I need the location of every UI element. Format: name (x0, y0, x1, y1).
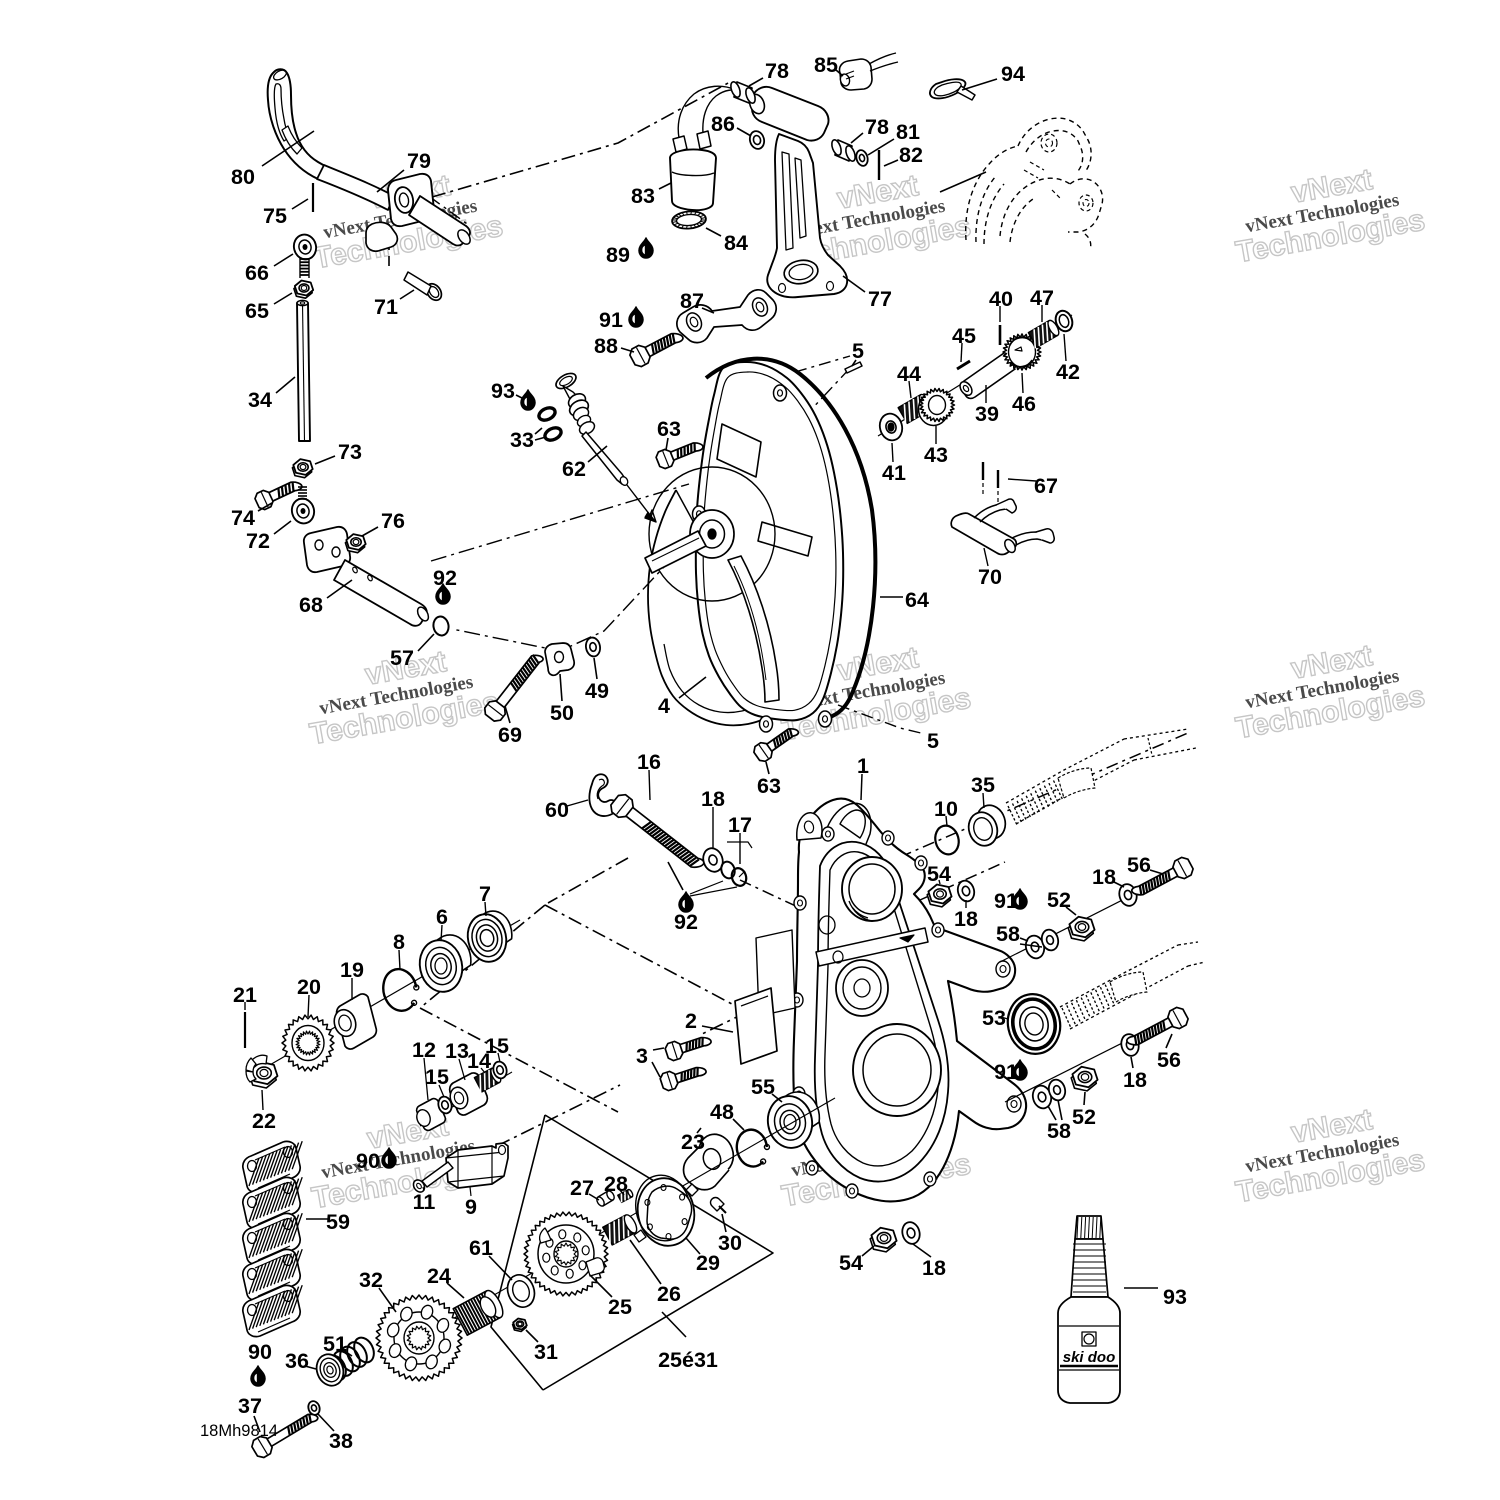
svg-text:93: 93 (491, 379, 515, 403)
svg-text:91: 91 (994, 1060, 1018, 1084)
svg-text:57: 57 (390, 646, 414, 670)
svg-text:13: 13 (445, 1039, 469, 1063)
svg-text:3: 3 (636, 1044, 648, 1068)
svg-text:86: 86 (711, 112, 735, 136)
svg-text:71: 71 (374, 295, 398, 319)
svg-text:9: 9 (465, 1195, 477, 1219)
svg-text:26: 26 (657, 1282, 681, 1306)
svg-text:18: 18 (922, 1256, 946, 1280)
svg-text:92: 92 (433, 566, 457, 590)
svg-text:64: 64 (905, 588, 929, 612)
svg-text:31: 31 (534, 1340, 558, 1364)
svg-text:59: 59 (326, 1210, 350, 1234)
svg-text:ski doo: ski doo (1063, 1349, 1116, 1366)
svg-text:34: 34 (248, 388, 272, 412)
svg-text:58: 58 (1047, 1119, 1071, 1143)
svg-text:33: 33 (510, 428, 534, 452)
svg-text:82: 82 (899, 143, 923, 167)
svg-text:5: 5 (927, 729, 939, 753)
svg-text:45: 45 (952, 324, 976, 348)
svg-text:28: 28 (604, 1172, 628, 1196)
svg-text:56: 56 (1127, 853, 1151, 877)
svg-text:25é31: 25é31 (658, 1348, 718, 1372)
svg-text:63: 63 (757, 774, 781, 798)
svg-text:90: 90 (248, 1340, 272, 1364)
svg-text:76: 76 (381, 509, 405, 533)
svg-text:62: 62 (562, 457, 586, 481)
svg-text:43: 43 (924, 443, 948, 467)
svg-text:36: 36 (285, 1349, 309, 1373)
svg-text:68: 68 (299, 593, 323, 617)
svg-text:81: 81 (896, 120, 920, 144)
svg-text:66: 66 (245, 261, 269, 285)
svg-text:83: 83 (631, 184, 655, 208)
svg-text:1: 1 (857, 754, 869, 778)
svg-text:4: 4 (658, 694, 670, 718)
svg-text:23: 23 (681, 1130, 705, 1154)
svg-text:46: 46 (1012, 392, 1036, 416)
svg-text:41: 41 (882, 461, 906, 485)
svg-text:70: 70 (978, 565, 1002, 589)
svg-text:75: 75 (263, 204, 287, 228)
svg-text:77: 77 (868, 287, 892, 311)
svg-text:67: 67 (1034, 474, 1058, 498)
svg-text:78: 78 (765, 59, 789, 83)
svg-text:55: 55 (751, 1075, 775, 1099)
svg-text:48: 48 (710, 1100, 734, 1124)
svg-text:22: 22 (252, 1109, 276, 1133)
svg-text:91: 91 (599, 308, 623, 332)
svg-text:72: 72 (246, 529, 270, 553)
svg-text:63: 63 (657, 417, 681, 441)
svg-text:15: 15 (425, 1065, 449, 1089)
svg-text:42: 42 (1056, 360, 1080, 384)
svg-text:51: 51 (323, 1332, 347, 1356)
svg-text:60: 60 (545, 798, 569, 822)
svg-text:18: 18 (1123, 1068, 1147, 1092)
svg-text:15: 15 (485, 1034, 509, 1058)
svg-text:11: 11 (413, 1190, 436, 1214)
svg-text:27: 27 (570, 1176, 594, 1200)
svg-text:85: 85 (814, 53, 838, 77)
svg-text:74: 74 (231, 506, 255, 530)
svg-text:18Mh9814: 18Mh9814 (200, 1422, 278, 1440)
svg-text:90: 90 (356, 1149, 380, 1173)
svg-text:29: 29 (696, 1251, 720, 1275)
svg-text:54: 54 (839, 1251, 863, 1275)
svg-text:73: 73 (338, 440, 362, 464)
svg-text:38: 38 (329, 1429, 353, 1453)
svg-text:40: 40 (989, 287, 1013, 311)
svg-text:94: 94 (1001, 62, 1025, 86)
svg-text:49: 49 (585, 679, 609, 703)
svg-text:39: 39 (975, 402, 999, 426)
svg-text:84: 84 (724, 231, 748, 255)
svg-text:25: 25 (608, 1295, 632, 1319)
svg-text:93: 93 (1163, 1285, 1187, 1309)
svg-text:65: 65 (245, 299, 269, 323)
svg-text:89: 89 (606, 243, 630, 267)
svg-text:80: 80 (231, 165, 255, 189)
svg-text:52: 52 (1072, 1105, 1096, 1129)
svg-text:18: 18 (1092, 865, 1116, 889)
svg-text:69: 69 (498, 723, 522, 747)
svg-text:88: 88 (594, 334, 618, 358)
svg-text:91: 91 (994, 889, 1018, 913)
svg-text:79: 79 (407, 149, 431, 173)
svg-text:92: 92 (674, 910, 698, 934)
svg-text:78: 78 (865, 115, 889, 139)
svg-text:56: 56 (1157, 1048, 1181, 1072)
svg-text:58: 58 (996, 922, 1020, 946)
svg-text:87: 87 (680, 289, 704, 313)
svg-text:5: 5 (852, 339, 864, 363)
svg-text:18: 18 (954, 907, 978, 931)
svg-text:50: 50 (550, 701, 574, 725)
svg-text:30: 30 (718, 1231, 742, 1255)
svg-text:37: 37 (238, 1394, 262, 1418)
svg-text:2: 2 (685, 1009, 697, 1033)
